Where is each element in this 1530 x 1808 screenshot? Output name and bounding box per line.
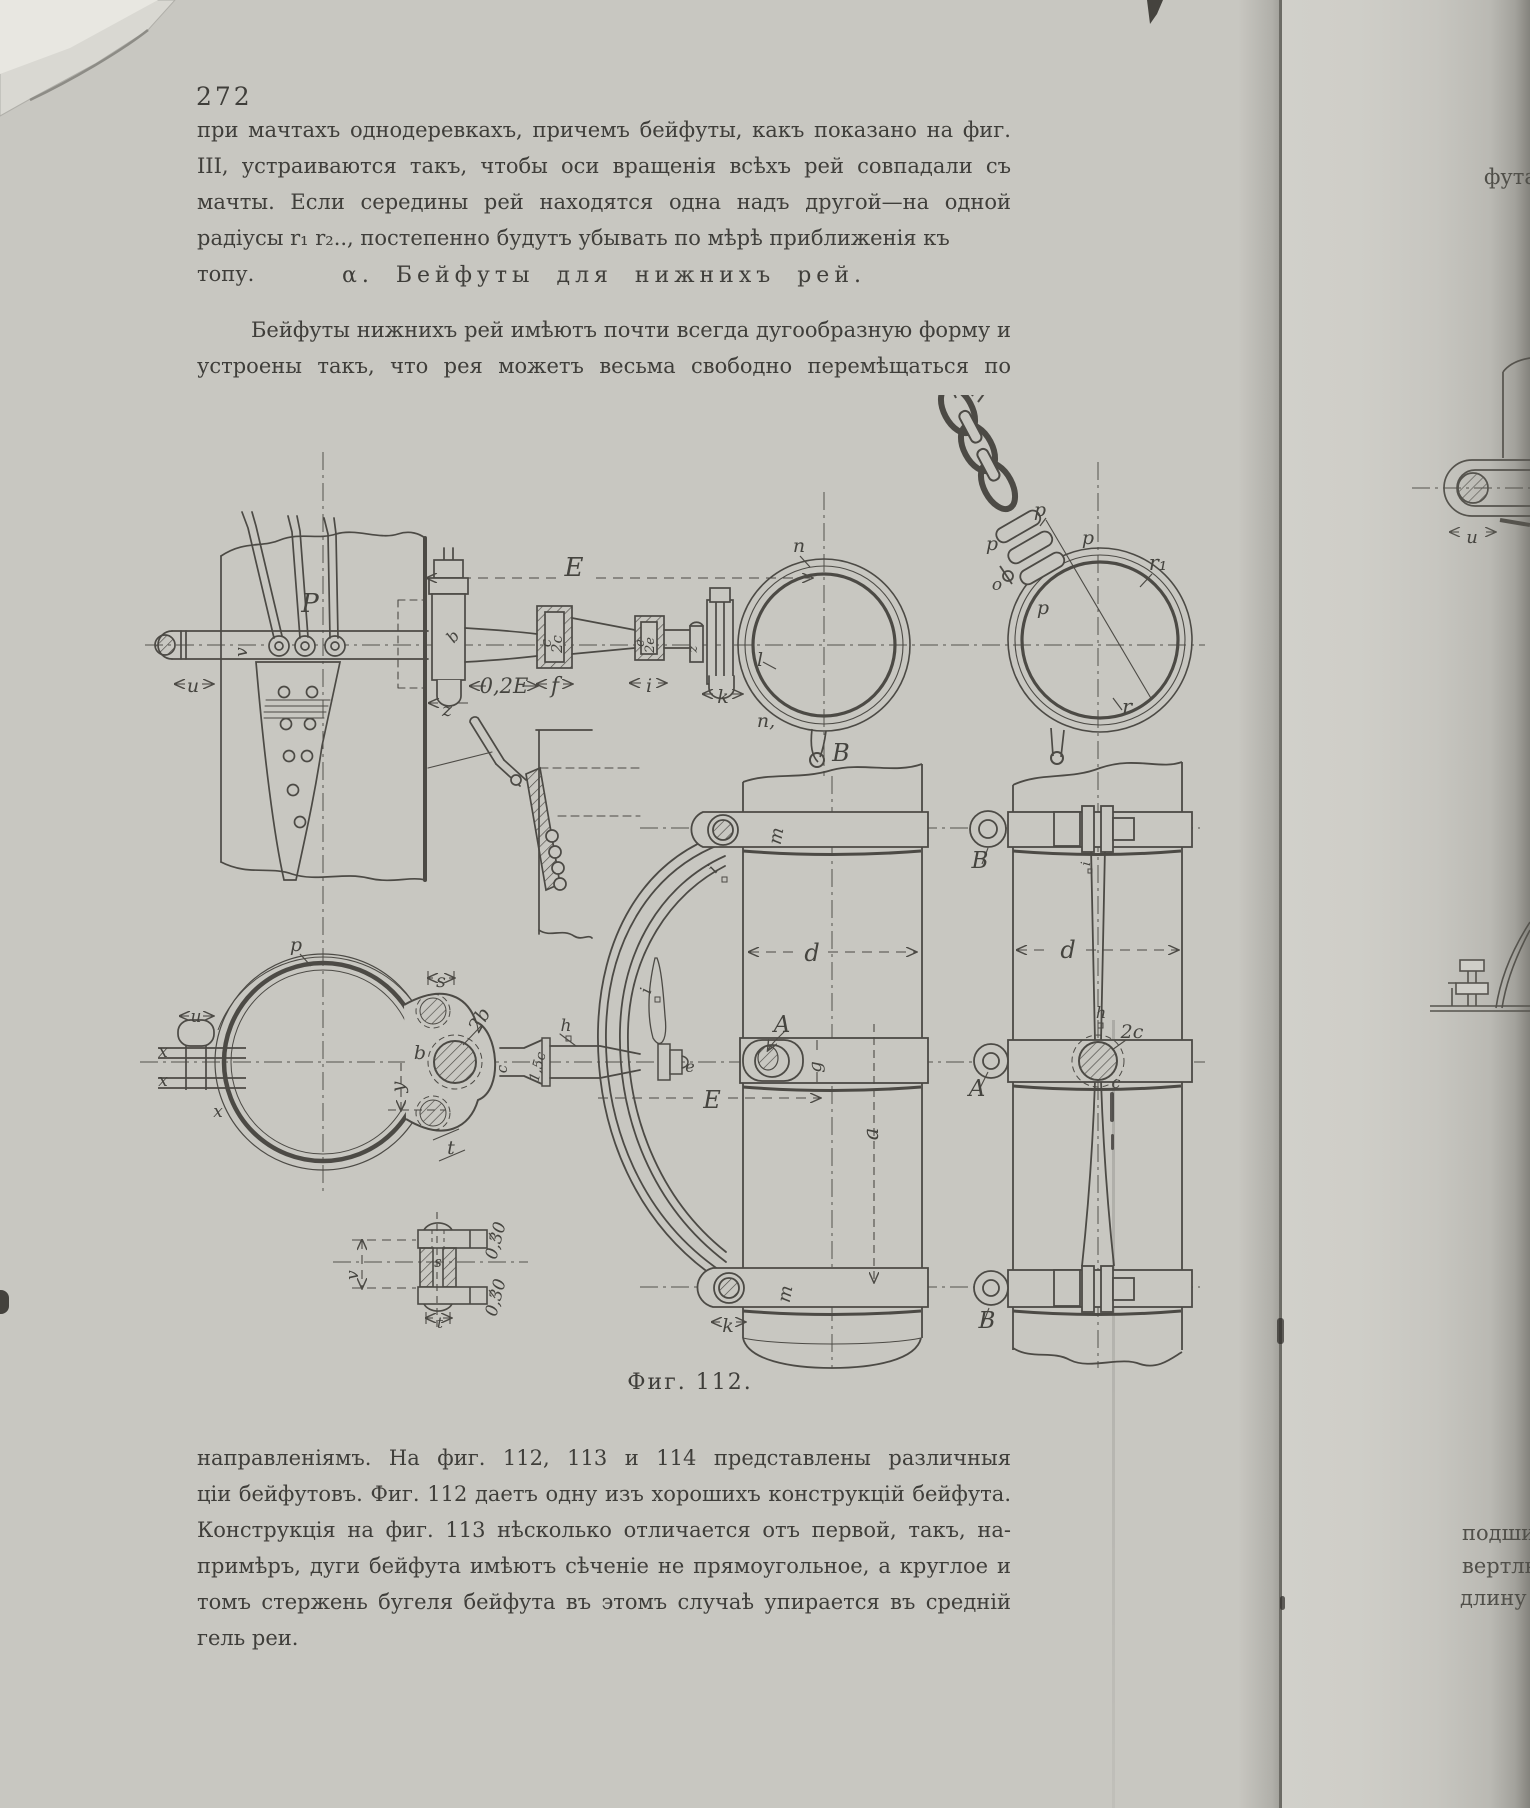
figure-label: B (831, 739, 850, 767)
text-line: Бейфуты нижнихъ рей имѣютъ почти всегда … (197, 312, 1011, 348)
centerlines (140, 452, 1205, 1368)
figure-label: l (757, 649, 763, 671)
text-line: III, устраиваются такъ, чтобы оси вращен… (197, 148, 1011, 184)
figure-label: g (805, 1061, 826, 1073)
figure-label: i (646, 675, 652, 697)
turnbuckle-detail (428, 717, 640, 938)
figure-label: E (564, 553, 584, 583)
label-squares (566, 869, 1103, 1041)
figure-112-drawing: PuvE0,2Ezfc2cie2ezkblnn,Bppppor₁rpuxxxs2… (130, 395, 1215, 1405)
figure-label: p (1037, 597, 1049, 619)
figure-label: r (1122, 695, 1134, 719)
adjacent-figure-labels: u (1466, 527, 1478, 548)
figure-label: k (722, 1315, 734, 1337)
figure-label: 0,30 (482, 1220, 511, 1262)
text-line: примѣръ, дуги бейфута имѣютъ сѣченіе не … (197, 1548, 1011, 1584)
adjacent-text-top: фута (1484, 165, 1530, 189)
figure-label: A (967, 1076, 986, 1102)
adjacent-figure-fragment: u (1400, 350, 1530, 1030)
figure-label: 2e (643, 637, 658, 654)
figure-label: v (343, 1270, 363, 1280)
figure-label: d (1060, 936, 1075, 964)
tear-mark (1138, 0, 1178, 30)
right-yard (970, 762, 1192, 1366)
text-line: мачты. Если середины рей находятся одна … (197, 184, 1011, 220)
fold-blot (1277, 1318, 1284, 1344)
figure-label: p (1034, 499, 1046, 521)
scanned-book-page: { "page": { "number": "272", "paragraph1… (0, 0, 1530, 1808)
text-line: радіусы r₁ r₂.., постепенно будутъ убыва… (197, 220, 1011, 256)
figure-label: o (992, 575, 1002, 595)
figure-label: 2c (1120, 1021, 1144, 1043)
figure-caption: Фиг. 112. (560, 1370, 820, 1395)
figure-label: e (685, 1057, 694, 1076)
figure-label: s (434, 1253, 442, 1271)
gutter-shadow (1238, 0, 1282, 1808)
adjacent-strap-end (1412, 358, 1530, 532)
paragraph-bottom: направленіямъ. На фиг. 112, 113 и 114 пр… (197, 1440, 1011, 1656)
figure-label: u (191, 1007, 202, 1027)
figure-label: h (561, 1016, 572, 1036)
figure-label: m (774, 1284, 798, 1304)
figure-label: B (971, 848, 989, 874)
figure-label: a (859, 1128, 883, 1141)
adjacent-text-line: подшип (1462, 1521, 1530, 1545)
figure-label: z (441, 699, 453, 721)
figure-label: p (290, 934, 302, 956)
text-line: Конструкція на фиг. 113 нѣсколько отлича… (197, 1512, 1011, 1548)
edge-blot (0, 1290, 9, 1314)
figure-label: 2c (548, 634, 566, 654)
figure-label: p (1082, 527, 1094, 549)
figure-label: s (436, 970, 446, 992)
figure-label: f (549, 674, 563, 699)
text-line: ціи бейфутовъ. Фиг. 112 даетъ одну изъ х… (197, 1476, 1011, 1512)
text-line: устроены такъ, что рея можетъ весьма сво… (197, 348, 1011, 384)
figure-label: t (437, 1314, 444, 1332)
adjacent-text-line: вертлю (1462, 1554, 1530, 1578)
figure-label: v (232, 647, 252, 657)
page-number: 272 (196, 82, 253, 111)
figure-label: 0,2E (480, 674, 529, 698)
text-line: направленіямъ. На фиг. 112, 113 и 114 пр… (197, 1440, 1011, 1476)
figure-label: x (213, 1102, 223, 1122)
figure-label: u (1466, 527, 1478, 548)
figure-label: x (158, 1042, 168, 1062)
torn-corner-flap (0, 0, 200, 130)
figure-label: t (447, 1137, 455, 1159)
figure-label: n (793, 535, 805, 557)
figure-label: c (493, 1064, 511, 1073)
fold-blot (1280, 1596, 1285, 1610)
text-line: при мачтахъ однодеревкахъ, причемъ бейфу… (197, 112, 1011, 148)
text-line: томъ стержень бугеля бейфута въ этомъ сл… (197, 1584, 1011, 1620)
figure-label: p (986, 533, 998, 555)
adjacent-lower-fragment (1430, 922, 1530, 1011)
right-ring-chain (934, 395, 1192, 764)
figure-label: P (300, 589, 319, 619)
figure-label: x (158, 1071, 168, 1091)
figure-label: A (772, 1012, 791, 1038)
figure-label: c (1112, 1073, 1121, 1092)
figure-label: n, (757, 710, 775, 732)
gutter-fold-line (1279, 0, 1282, 1808)
figure-label: d (804, 939, 819, 967)
section-heading: α. Бейфуты для нижнихъ рей. (197, 263, 1011, 303)
figure-label: b (414, 1042, 426, 1064)
figure-label: k (717, 686, 729, 708)
figure-label: h (1096, 1003, 1106, 1022)
text-line: гель реи. (197, 1620, 1011, 1656)
figure-label: y (387, 1081, 409, 1093)
figure-label: 0,30 (482, 1277, 511, 1319)
paragraph-top: при мачтахъ однодеревкахъ, причемъ бейфу… (197, 112, 1011, 256)
figure-label: m (765, 826, 789, 846)
figure-label: r₁ (1149, 551, 1167, 575)
figure-label: B (978, 1308, 996, 1334)
paragraph-middle: Бейфуты нижнихъ рей имѣютъ почти всегда … (197, 312, 1011, 384)
figure-label: z (686, 645, 701, 653)
figure-label: E (702, 1086, 721, 1114)
adjacent-text-line: длину (1460, 1586, 1527, 1610)
figure-label: u (187, 675, 199, 697)
